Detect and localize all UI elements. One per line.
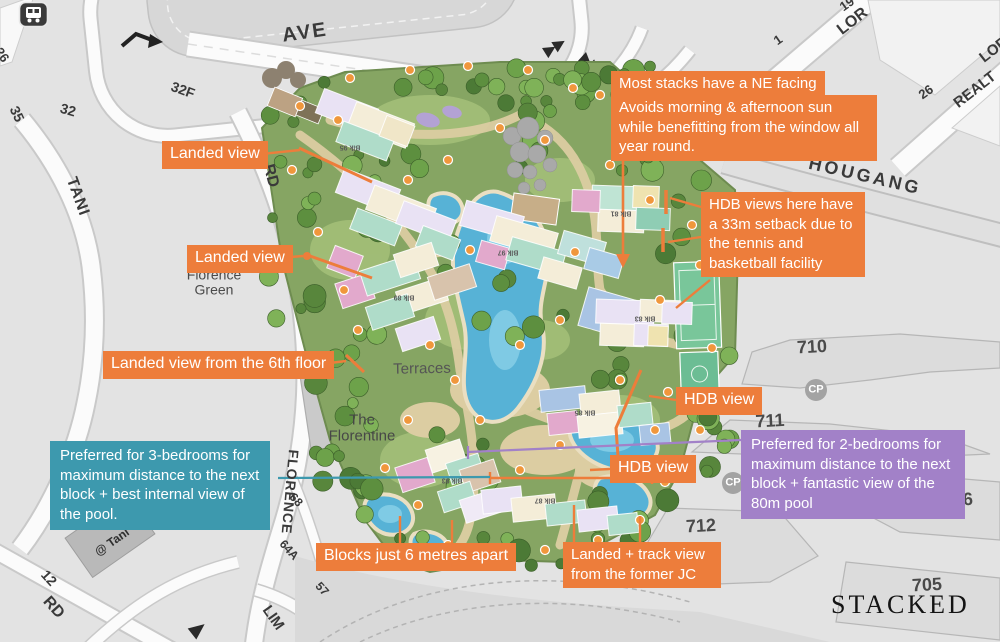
tree	[436, 84, 448, 96]
callout-ne-facing-body: Avoids morning & afternoon sun while ben…	[611, 95, 877, 161]
stacked-logo: STACKED	[831, 590, 970, 620]
stack-marker-dot	[571, 248, 580, 257]
stack-marker-dot	[541, 546, 550, 555]
tree	[475, 73, 489, 87]
tree	[297, 208, 316, 227]
stack-marker-dot	[556, 316, 565, 325]
stack-marker-dot	[340, 286, 349, 295]
stack-marker-dot	[406, 66, 415, 75]
stack-marker-dot	[496, 124, 505, 133]
tree	[720, 347, 738, 365]
stack-marker-dot	[688, 221, 697, 230]
stack-marker-dot	[464, 62, 473, 71]
tree	[525, 78, 544, 97]
stack-marker-dot	[516, 466, 525, 475]
annotated-site-map: AVETANIRDFLORENCELIMRDHOUGANGLORLORREALT…	[0, 0, 1000, 642]
callout-hdb-setback: HDB views here have a 33m setback due to…	[701, 192, 865, 277]
tree	[347, 398, 358, 409]
condo-building	[648, 326, 669, 347]
tree	[394, 78, 412, 96]
callout-hdb-view-1: HDB view	[676, 387, 762, 415]
tree	[493, 275, 510, 292]
tree	[575, 95, 590, 110]
stack-marker-dot	[606, 161, 615, 170]
tree	[296, 304, 306, 314]
stack-marker-dot	[381, 464, 390, 473]
tree	[268, 310, 285, 327]
stack-marker-dot	[708, 344, 717, 353]
callout-landed-view-1: Landed view	[162, 141, 268, 169]
tree	[488, 78, 505, 95]
tree	[582, 72, 601, 91]
sports-courts	[674, 261, 724, 398]
tree	[429, 427, 445, 443]
stack-marker-dot	[288, 166, 297, 175]
tree	[274, 155, 287, 168]
stack-marker-dot	[334, 116, 343, 125]
stack-marker-dot	[651, 426, 660, 435]
tree	[701, 465, 713, 477]
stack-marker-dot	[404, 416, 413, 425]
stack-marker-dot	[569, 84, 578, 93]
tree	[335, 406, 355, 426]
tree	[522, 316, 544, 338]
stack-marker-dot	[476, 416, 485, 425]
stack-marker-dot	[296, 102, 305, 111]
callout-preferred-2br: Preferred for 2-bedrooms for maximum dis…	[741, 430, 965, 519]
stack-marker-dot	[596, 91, 605, 100]
tree	[268, 213, 278, 223]
tree	[691, 170, 712, 191]
stack-marker-dot	[524, 66, 533, 75]
callout-blocks-apart: Blocks just 6 metres apart	[316, 543, 516, 571]
tree	[313, 471, 333, 491]
tree	[410, 159, 428, 177]
tree	[498, 95, 515, 112]
condo-building	[607, 512, 639, 535]
stack-marker-dot	[414, 501, 423, 510]
tree	[349, 377, 368, 396]
stack-marker-dot	[314, 228, 323, 237]
bus-stop-icon	[18, 1, 50, 29]
tree	[656, 489, 679, 512]
callout-landed-track-view: Landed + track view from the former JC	[563, 542, 721, 588]
tree	[318, 76, 330, 88]
stack-marker-dot	[466, 246, 475, 255]
tree	[507, 59, 526, 78]
stack-marker-dot	[426, 341, 435, 350]
tree	[361, 478, 384, 501]
tree	[356, 506, 373, 523]
callout-preferred-3br: Preferred for 3-bedrooms for maximum dis…	[50, 441, 270, 530]
stack-marker-dot	[346, 74, 355, 83]
condo-building	[547, 410, 579, 435]
stack-marker-dot	[404, 176, 413, 185]
tree	[418, 70, 433, 85]
tree	[591, 370, 609, 388]
callout-landed-view-2: Landed view	[187, 245, 293, 273]
tree	[334, 451, 345, 462]
cp-circle-icon	[805, 379, 827, 401]
condo-building	[662, 301, 693, 324]
tree	[472, 311, 491, 330]
stack-marker-dot	[444, 156, 453, 165]
stack-marker-dot	[516, 341, 525, 350]
stack-marker-dot	[541, 136, 550, 145]
tree	[303, 284, 326, 307]
stack-marker-dot	[656, 296, 665, 305]
tree	[641, 159, 664, 182]
tree	[364, 418, 379, 433]
tree	[655, 243, 675, 263]
stack-marker-dot	[354, 326, 363, 335]
stack-marker-dot	[646, 196, 655, 205]
callout-ne-facing-title: Most stacks have a NE facing	[611, 71, 825, 98]
stack-marker-dot	[664, 388, 673, 397]
stack-marker-dot	[696, 426, 705, 435]
tree	[673, 228, 691, 246]
callout-hdb-view-2: HDB view	[610, 455, 696, 483]
tree	[476, 438, 489, 451]
tree	[316, 449, 334, 467]
callout-landed-view-6th-floor: Landed view from the 6th floor	[103, 351, 334, 379]
condo-building	[572, 190, 601, 213]
stack-marker-dot	[451, 376, 460, 385]
tree	[288, 116, 299, 127]
stack-marker-dot	[616, 376, 625, 385]
tree	[544, 105, 557, 118]
tree	[525, 559, 537, 571]
tree	[308, 192, 321, 205]
